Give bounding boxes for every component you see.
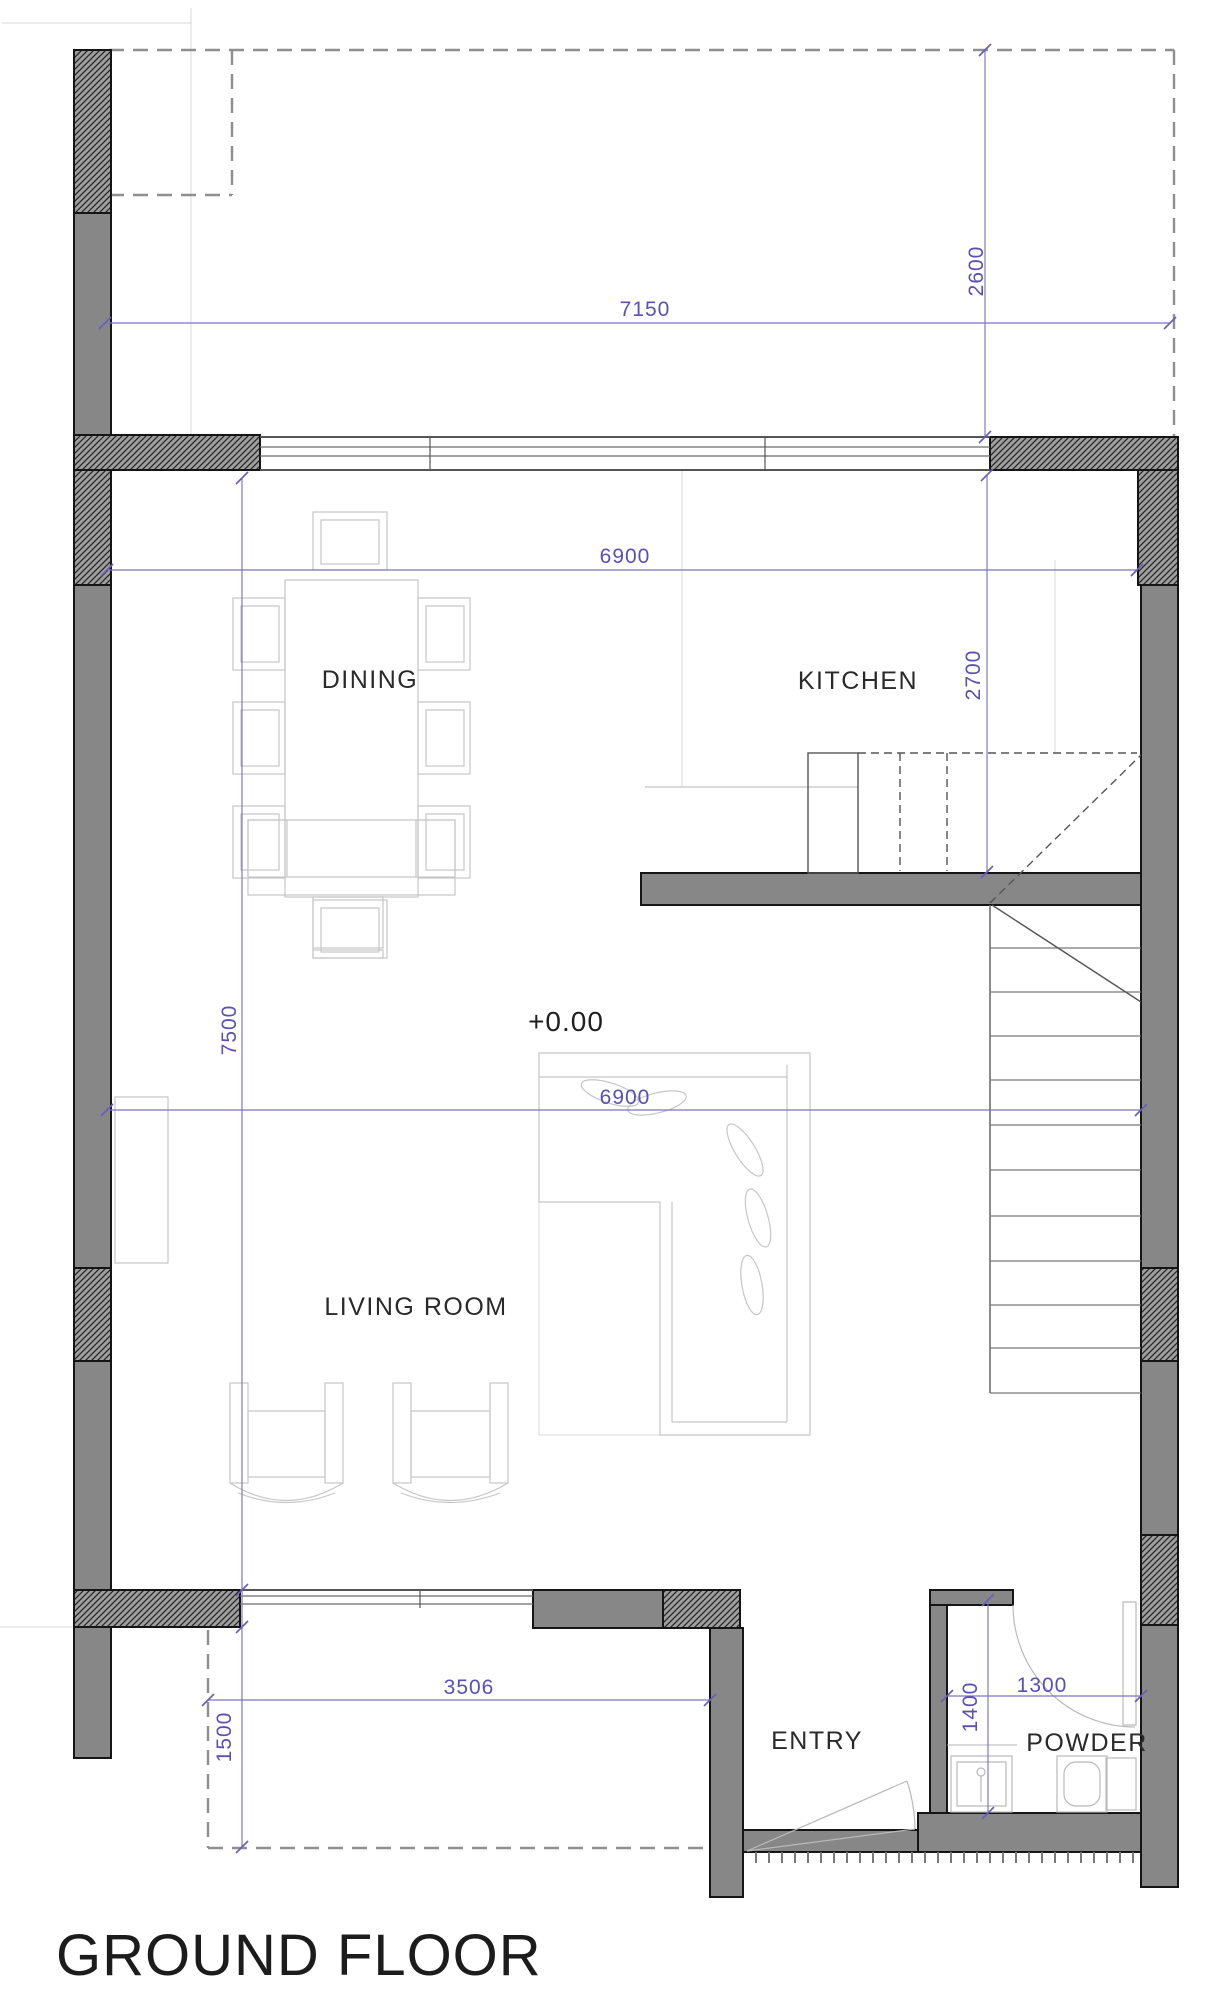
dim-label-2600: 2600 <box>965 246 988 297</box>
room-label-kitchen: KITCHEN <box>798 667 918 695</box>
room-label-entry: ENTRY <box>771 1727 863 1755</box>
dimension-labels: 7150 2600 6900 2700 7500 6900 3506 1500 … <box>213 246 1067 1763</box>
wall-right-lower <box>1141 1361 1178 1535</box>
powder-door <box>1013 1602 1136 1727</box>
floor-plan-drawing: 7150 2600 6900 2700 7500 6900 3506 1500 … <box>0 0 1222 2000</box>
dining-table-set <box>233 512 470 958</box>
wall-entry <box>710 1628 743 1897</box>
wall-left-mid-hatched <box>74 1268 111 1361</box>
level-marker: +0.00 <box>528 1006 604 1037</box>
kitchen-cabinet <box>808 753 858 873</box>
dim-label-7500: 7500 <box>218 1005 241 1056</box>
dim-label-1300: 1300 <box>1017 1674 1068 1697</box>
toilet <box>1057 1756 1136 1812</box>
window-south <box>240 1590 533 1608</box>
wall-left-upper <box>74 213 111 435</box>
wall-left-bottom <box>74 1627 111 1758</box>
wall-left-top-hatched <box>74 50 111 213</box>
guide-lines <box>0 8 1055 1627</box>
kitchen-counter <box>645 753 1137 873</box>
wall-interior-stair <box>641 873 1141 905</box>
room-label-dining: DINING <box>322 666 419 694</box>
wall-bottom-mid-hatched <box>663 1590 740 1628</box>
wall-top-right-corner <box>990 437 1178 470</box>
sideboard <box>115 1097 168 1263</box>
living-room-furniture <box>115 820 810 1503</box>
wall-bottom-left-corner <box>74 1590 240 1627</box>
sheet-title: GROUND FLOOR <box>56 1923 542 1988</box>
paving-marks <box>753 1852 1137 1863</box>
washbasin <box>951 1756 1012 1812</box>
ottoman <box>313 897 383 948</box>
staircase <box>990 755 1141 1393</box>
dining-chair <box>313 900 387 958</box>
dining-table <box>285 580 418 897</box>
wall-right-low-hatched <box>1141 1535 1178 1625</box>
room-label-living: LIVING ROOM <box>324 1293 507 1321</box>
wall-right-middle <box>1141 585 1178 1268</box>
wall-top-left-corner <box>74 435 260 470</box>
stair-break-line <box>992 905 1141 1002</box>
dim-label-6900-upper: 6900 <box>600 545 651 568</box>
wall-powder-top-stub <box>930 1590 1013 1605</box>
wall-powder-bottom <box>918 1813 1141 1852</box>
wall-powder-left <box>930 1590 947 1813</box>
wall-right-mid-hatched <box>1141 1268 1178 1361</box>
dim-label-7150: 7150 <box>620 298 671 321</box>
dining-chair <box>313 512 387 570</box>
room-label-powder: POWDER <box>1026 1729 1148 1757</box>
window-north <box>260 437 990 470</box>
wall-left-middle <box>74 585 111 1268</box>
wall-left-lower <box>74 1361 111 1590</box>
armchair <box>393 1383 508 1503</box>
dim-label-6900-mid: 6900 <box>600 1086 651 1109</box>
wall-bottom-middle <box>533 1590 663 1628</box>
dim-label-1500: 1500 <box>213 1712 236 1763</box>
wall-right-corner-leg <box>1138 470 1178 585</box>
wall-left-corner-leg <box>74 470 111 585</box>
armchair <box>230 1383 343 1503</box>
walls-hatched <box>74 50 1178 1628</box>
faucet-icon <box>977 1768 985 1776</box>
dim-label-2700: 2700 <box>962 650 985 701</box>
dim-label-1400: 1400 <box>959 1682 982 1733</box>
dim-label-3506: 3506 <box>444 1676 495 1699</box>
floor-plan-page: 7150 2600 6900 2700 7500 6900 3506 1500 … <box>0 0 1222 2000</box>
